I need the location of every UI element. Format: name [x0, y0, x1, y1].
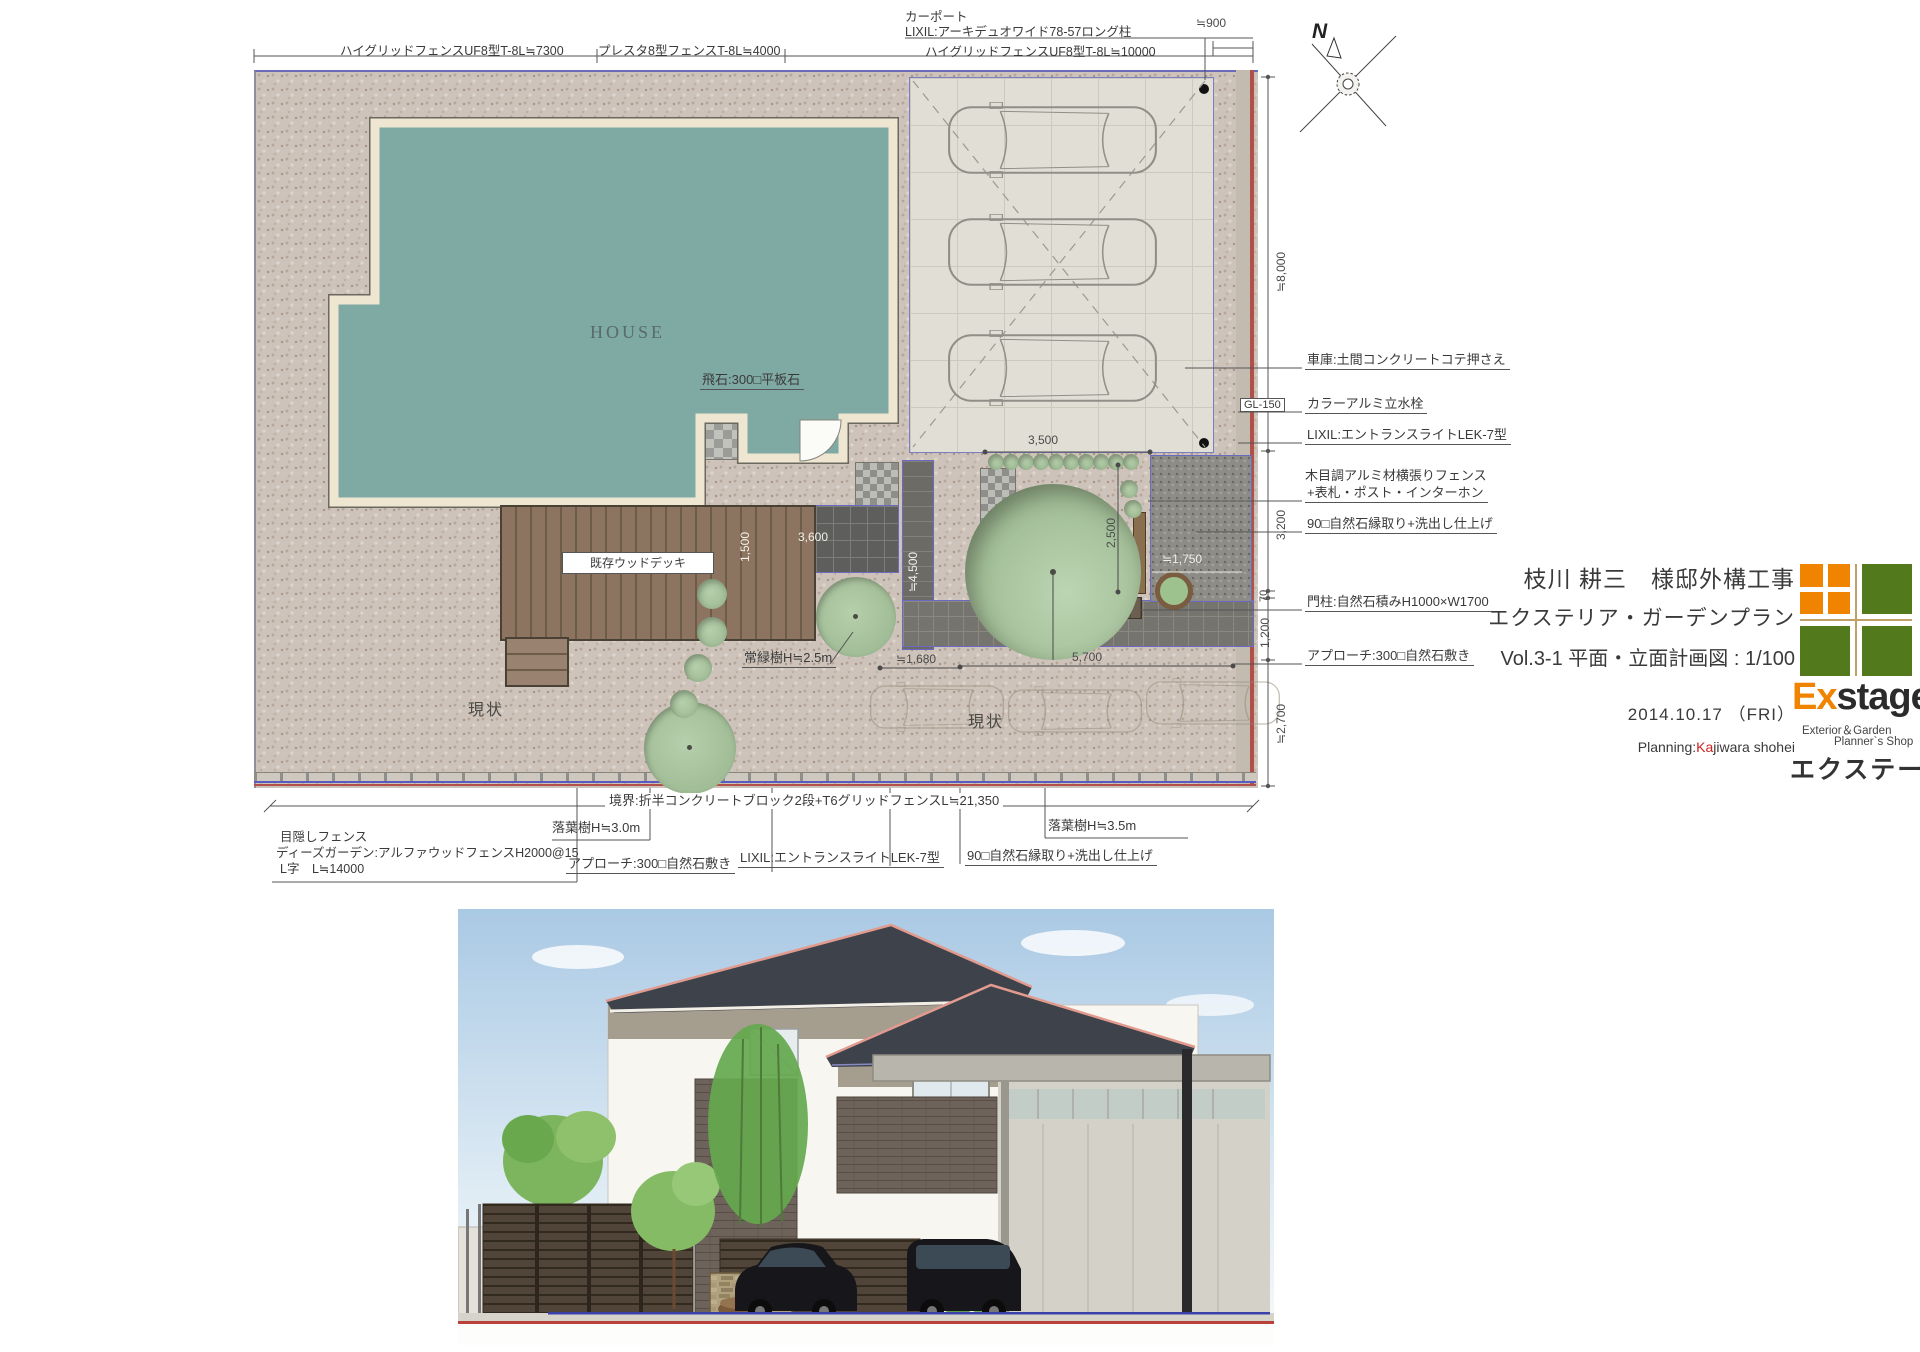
site-right-boundary-line [1250, 70, 1254, 786]
evergreen-label: 常緑樹H≒2.5m [742, 650, 836, 668]
dim-3500: 3,500 [1028, 433, 1058, 447]
hedge-bush [1108, 454, 1124, 470]
exstage-logo [1800, 564, 1912, 676]
dim-2500: 2,500 [1104, 518, 1118, 548]
brand-stage: stage [1836, 676, 1920, 718]
ann-privacy-fence-1: 目隠しフェンス [280, 830, 367, 846]
north-letter: N [1312, 20, 1327, 44]
dim-1750: ≒1,750 [1162, 552, 1202, 566]
logo-orange-grid [1800, 564, 1850, 614]
site-bottom-red-line [254, 784, 1256, 786]
logo-green-square [1800, 626, 1850, 676]
house-label: HOUSE [590, 322, 665, 343]
ann-tree35: 落葉樹H≒3.5m [1048, 818, 1136, 834]
ann-stone-bottom: 90□自然石縁取り+洗出し仕上げ [965, 848, 1157, 866]
dim-1500: 1,500 [738, 532, 752, 562]
brand-wordmark: Exstage [1792, 676, 1920, 719]
carport-post [1199, 84, 1209, 94]
planner-rest: jiwara shohei [1713, 739, 1795, 755]
site-bottom-blue-line [254, 781, 1256, 783]
gl-level-tag: GL-150 [1240, 398, 1285, 412]
ann-entrance-light: LIXIL:エントランスライトLEK-7型 [1305, 427, 1511, 445]
logo-green-square [1862, 626, 1912, 676]
fence-label-2: プレスタ8型フェンスT-8L≒4000 [598, 40, 781, 59]
ann-wood-fence-2: +表札・ポスト・インターホン [1305, 485, 1488, 503]
tree-center-dot [687, 745, 692, 750]
hedge-bush [1018, 454, 1034, 470]
carport-label-line2: LIXIL:アーキデュオワイド78-57ロング柱 [905, 21, 1131, 40]
ann-tree30: 落葉樹H≒3.0m [552, 820, 640, 836]
hedge-bush [1124, 500, 1142, 518]
elevation-view [458, 909, 1274, 1345]
hedge-bush [1120, 480, 1138, 498]
shrub [697, 617, 727, 647]
hedge-bush [1048, 454, 1064, 470]
ann-stone-edge: 90□自然石縁取り+洗出し仕上げ [1305, 516, 1497, 534]
entrance-tiles [704, 420, 802, 460]
fence-label-3: ハイグリッドフェンスUF8型T-8L≒10000 [925, 41, 1156, 60]
hedge-bush [1093, 454, 1109, 470]
ann-approach-bottom: アプローチ:300□自然石敷き [566, 856, 735, 874]
hedge-bush [1033, 454, 1049, 470]
carport-post [1199, 438, 1209, 448]
drawing-sheet: ハイグリッドフェンスUF8型T-8L≒7300 プレスタ8型フェンスT-8L≒4… [0, 0, 1920, 1352]
hedge-bush [1063, 454, 1079, 470]
planner-head: Ka [1696, 739, 1713, 755]
ann-privacy-fence-2: ディーズガーデン:アルファウッドフェンスH2000@15 [276, 846, 579, 862]
minivan-car [907, 1239, 1021, 1323]
client-name: 枝川 耕三 様邸外構工事 [1485, 560, 1795, 594]
hedge-bush [1123, 454, 1139, 470]
tobiishi-label: 飛石:300□平板石 [700, 372, 804, 390]
dim-5700: 5,700 [1072, 650, 1102, 664]
ann-privacy-fence-3: L字 L≒14000 [280, 862, 364, 878]
brand-kana: エクステージ [1790, 750, 1920, 786]
fence-label-1: ハイグリッドフェンスUF8型T-8L≒7300 [340, 40, 564, 59]
ann-garage: 車庫:土間コンクリートコテ押さえ [1305, 352, 1510, 370]
site-right-boundary [1236, 70, 1250, 786]
north-arrow [1300, 36, 1396, 132]
ann-approach: アプローチ:300□自然石敷き [1305, 648, 1474, 666]
dim-900: ≒900 [1196, 16, 1226, 30]
tree-center-dot [853, 614, 858, 619]
sheet-title: Vol.3-1 平面・立面計画図 : 1/100 [1465, 642, 1795, 671]
deck-steps [505, 637, 569, 687]
existing-label-bottom: 現状 [968, 708, 1004, 732]
tree-center-dot [1050, 569, 1056, 575]
hedge-bush [1078, 454, 1094, 470]
dim-3600: 3,600 [798, 530, 828, 544]
planning-label: Planning: [1638, 739, 1696, 755]
ann-light-bottom: LIXIL:エントランスライトLEK-7型 [738, 850, 944, 868]
shrub [684, 654, 712, 682]
planner-line: Planning:Kajiwara shohei [1545, 739, 1795, 755]
brand-ex: Ex [1792, 676, 1836, 718]
dim-70: 70 [1258, 590, 1270, 602]
dim-1200: 1,200 [1258, 618, 1272, 648]
shrub [697, 579, 727, 609]
hedge-bush [1003, 454, 1019, 470]
deck-label: 既存ウッドデッキ [562, 552, 714, 574]
sheet-date: 2014.10.17 （FRI） [1620, 700, 1795, 725]
hedge-bush [988, 454, 1004, 470]
plan-type: エクステリア・ガーデンプラン [1485, 602, 1795, 632]
elevation-drawing [458, 909, 1274, 1345]
ann-gate-pillar: 門柱:自然石積みH1000×W1700 [1305, 594, 1493, 612]
dim-2700: ≒2,700 [1274, 704, 1288, 744]
dim-4500: ≒4,500 [906, 552, 920, 592]
logo-divider [1800, 619, 1912, 621]
tsukubai-pot [1155, 572, 1193, 610]
brand-sub2: Planner`s Shop [1834, 736, 1913, 748]
ann-wood-fence-1: 木目調アルミ材横張りフェンス [1305, 468, 1487, 484]
shrub [670, 690, 698, 718]
ann-faucet: カラーアルミ立水栓 [1305, 396, 1427, 414]
existing-label-left: 現状 [468, 696, 504, 720]
logo-green-square [1862, 564, 1912, 614]
ann-boundary: 境界:折半コンクリートブロック2段+T6グリッドフェンスL≒21,350 [605, 793, 1003, 809]
dim-8000: ≒8,000 [1274, 252, 1288, 292]
carport-slab [909, 77, 1214, 453]
dim-3200: 3,200 [1274, 510, 1288, 540]
dim-1680: ≒1,680 [896, 652, 936, 666]
